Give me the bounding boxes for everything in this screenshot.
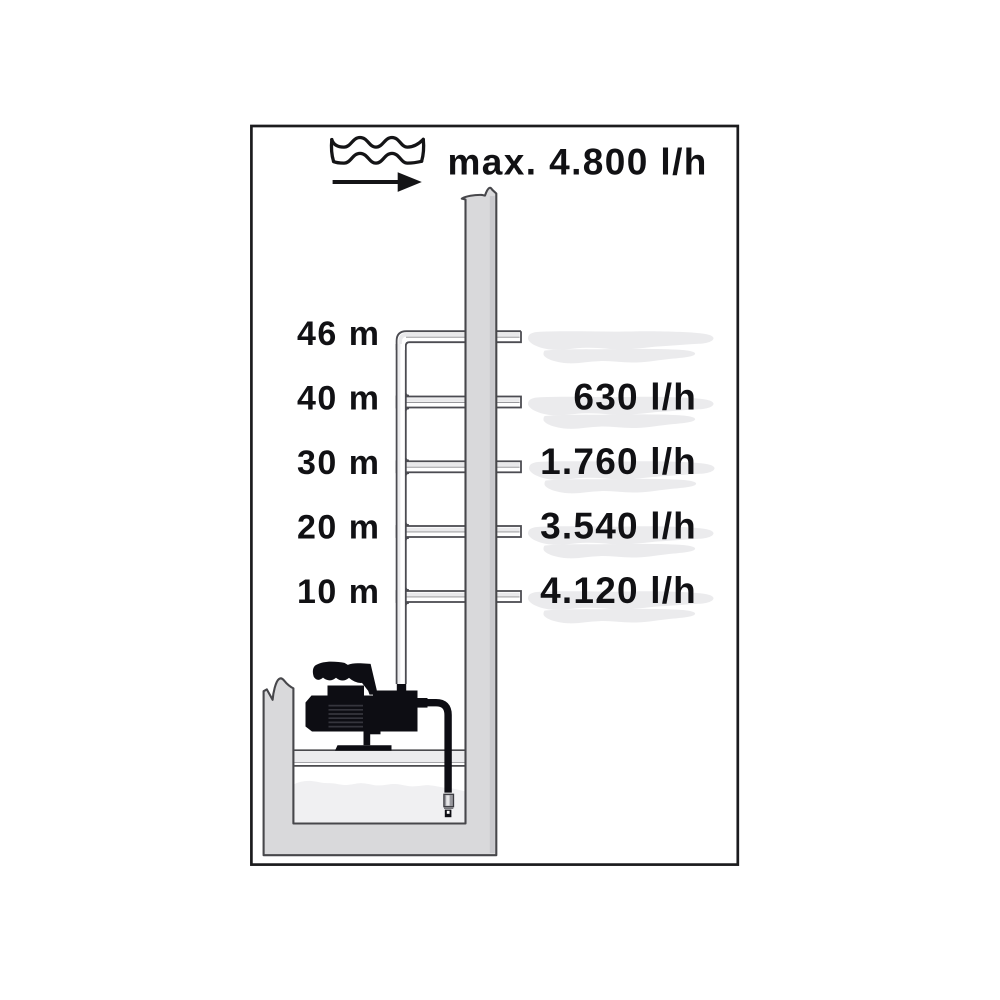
svg-text:4.120 l/h: 4.120 l/h [540,570,697,611]
svg-text:630 l/h: 630 l/h [573,376,697,417]
svg-text:1.760 l/h: 1.760 l/h [540,441,697,482]
svg-text:40 m: 40 m [297,379,381,417]
svg-text:max. 4.800 l/h: max. 4.800 l/h [448,142,708,183]
svg-text:20 m: 20 m [297,509,381,547]
svg-text:46 m: 46 m [297,315,381,353]
svg-text:3.540 l/h: 3.540 l/h [540,506,697,547]
svg-text:10 m: 10 m [297,573,381,611]
svg-text:30 m: 30 m [297,444,381,482]
